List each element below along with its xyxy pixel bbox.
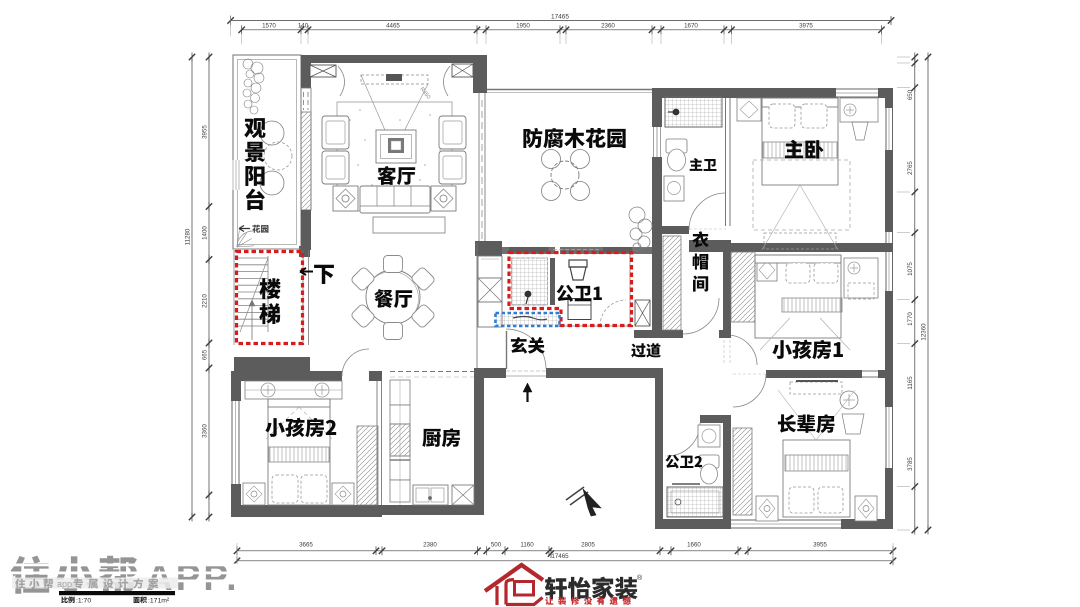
svg-text:2360: 2360 xyxy=(601,23,615,30)
svg-text:1570: 1570 xyxy=(262,23,276,30)
svg-text:3785: 3785 xyxy=(907,457,914,471)
svg-text:12360: 12360 xyxy=(921,323,928,341)
svg-text:140: 140 xyxy=(298,23,309,30)
svg-text:2765: 2765 xyxy=(907,161,914,175)
svg-text:3955: 3955 xyxy=(202,125,209,139)
svg-text::1:70: :1:70 xyxy=(76,598,91,605)
svg-text:3665: 3665 xyxy=(299,542,313,549)
svg-text:®: ® xyxy=(637,574,643,582)
svg-text:2210: 2210 xyxy=(202,294,209,308)
svg-text:1950: 1950 xyxy=(516,23,530,30)
svg-text::171m²: :171m² xyxy=(148,598,170,605)
svg-text:3955: 3955 xyxy=(813,542,827,549)
svg-text:665: 665 xyxy=(202,349,209,360)
svg-text:1075: 1075 xyxy=(907,262,914,276)
svg-text:4465: 4465 xyxy=(386,23,400,30)
svg-text:1165: 1165 xyxy=(907,376,914,390)
svg-text:3975: 3975 xyxy=(799,23,813,30)
svg-text:2805: 2805 xyxy=(581,542,595,549)
svg-text:650: 650 xyxy=(907,89,914,100)
svg-text:2380: 2380 xyxy=(423,542,437,549)
svg-text:11280: 11280 xyxy=(185,228,192,245)
svg-text:1670: 1670 xyxy=(684,23,698,30)
svg-text:1660: 1660 xyxy=(687,542,701,549)
svg-text:500: 500 xyxy=(491,542,502,549)
svg-text:17465: 17465 xyxy=(551,14,569,21)
svg-text:1770: 1770 xyxy=(907,312,914,326)
svg-text:3360: 3360 xyxy=(202,424,209,438)
svg-text:1160: 1160 xyxy=(520,542,534,549)
svg-text:17465: 17465 xyxy=(551,553,569,560)
svg-text:app: app xyxy=(57,579,72,589)
svg-text:1400: 1400 xyxy=(202,226,209,240)
